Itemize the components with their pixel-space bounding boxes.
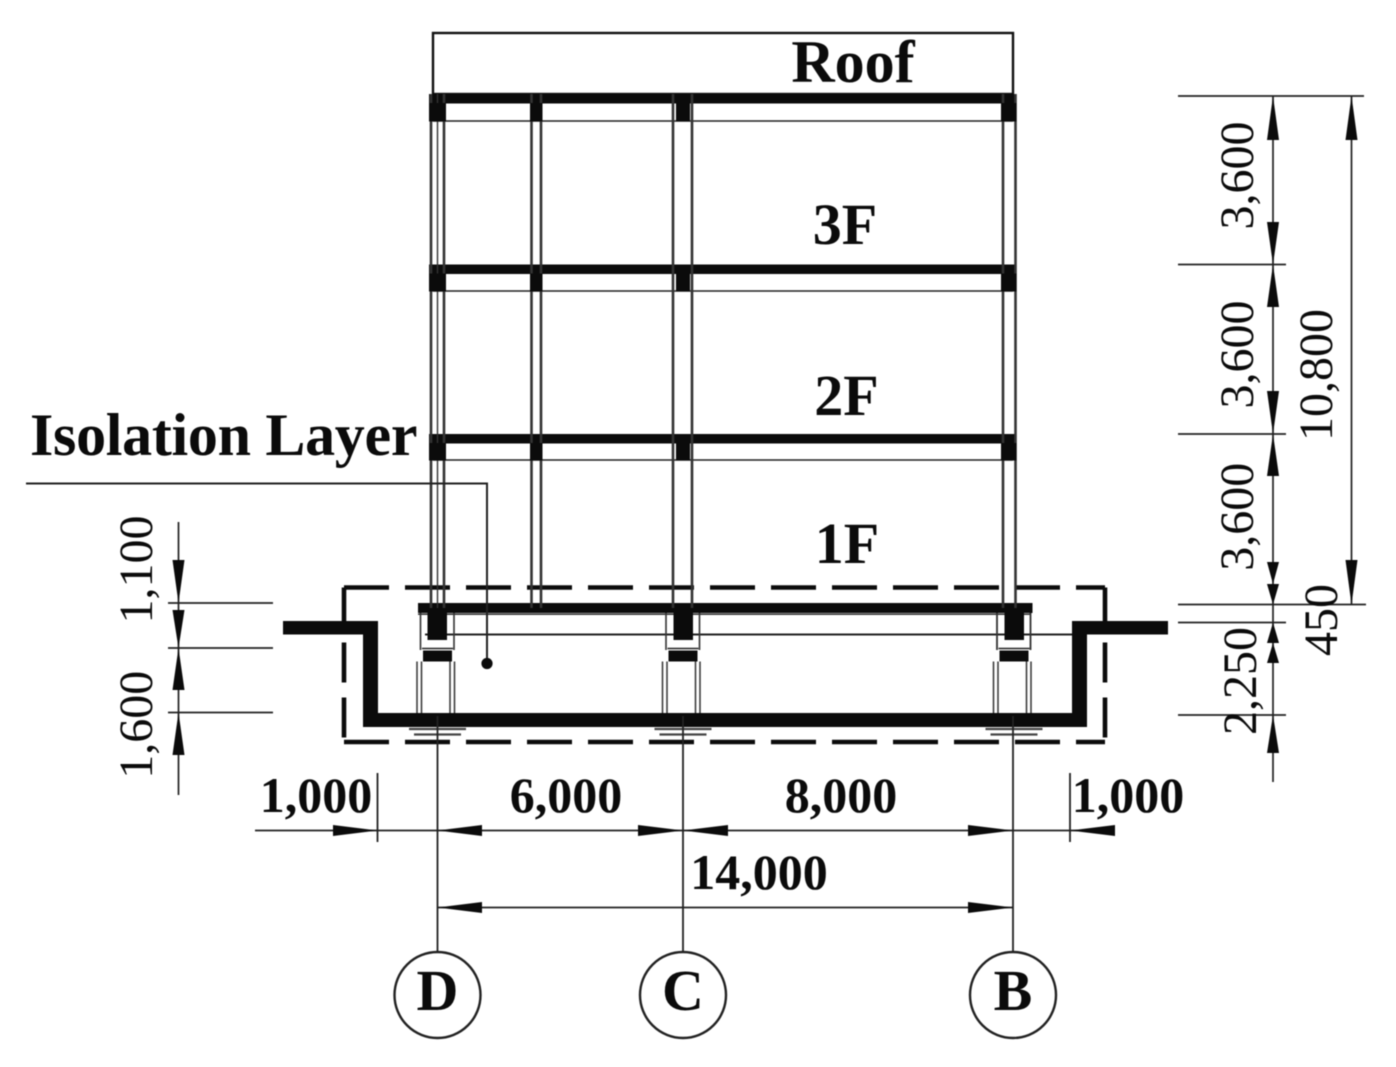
svg-text:2,250: 2,250 <box>1214 627 1267 735</box>
svg-text:1,000: 1,000 <box>260 767 373 823</box>
svg-text:8,000: 8,000 <box>785 767 898 823</box>
svg-text:1,600: 1,600 <box>110 671 163 779</box>
svg-text:Roof: Roof <box>791 29 915 95</box>
svg-text:C: C <box>662 958 704 1023</box>
svg-text:450: 450 <box>1295 584 1348 656</box>
svg-text:Isolation Layer: Isolation Layer <box>30 402 417 468</box>
svg-text:10,800: 10,800 <box>1290 309 1343 441</box>
svg-text:3,600: 3,600 <box>1211 122 1264 230</box>
svg-text:2F: 2F <box>814 363 878 428</box>
svg-text:1,000: 1,000 <box>1072 767 1185 823</box>
svg-text:1F: 1F <box>815 511 879 576</box>
svg-text:3F: 3F <box>813 192 877 257</box>
svg-text:14,000: 14,000 <box>690 844 828 900</box>
svg-text:3,600: 3,600 <box>1211 301 1264 409</box>
svg-text:B: B <box>994 958 1033 1023</box>
svg-text:3,600: 3,600 <box>1211 463 1264 571</box>
svg-text:6,000: 6,000 <box>510 767 623 823</box>
svg-text:D: D <box>417 958 459 1023</box>
svg-text:1,100: 1,100 <box>110 516 163 624</box>
